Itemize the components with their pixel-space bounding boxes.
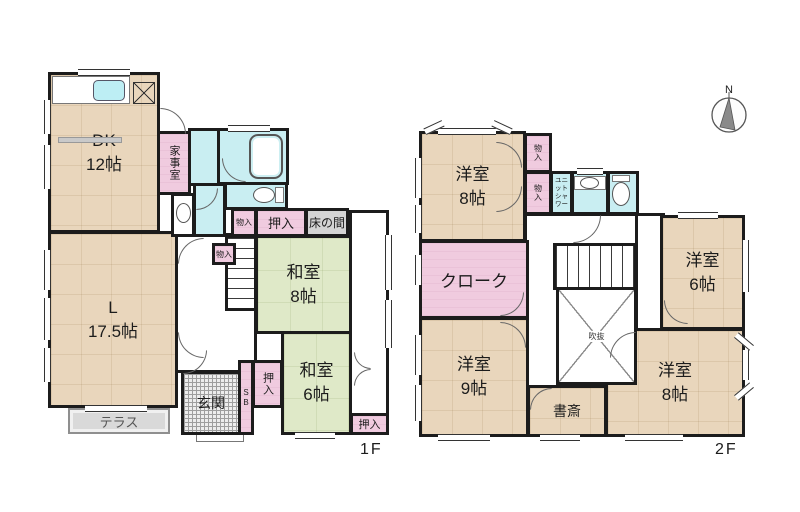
floor-label-2f: 2F (715, 441, 738, 459)
washroom-1f (188, 128, 220, 186)
room-yoshitsu-9-name: 洋室 (457, 353, 491, 377)
unit-shower-line1: ユニット (553, 177, 570, 193)
room-kajishitsu-label: 家事室 (166, 145, 182, 181)
closet-oshiire-top-label: 押入 (268, 213, 294, 232)
closet-oshiire-side-1f: 押入 (252, 360, 283, 408)
room-washitsu-6-name: 和室 (300, 359, 334, 383)
window (44, 250, 51, 290)
kitchen-sink (93, 80, 125, 101)
void-fukinuke-label: 吹抜 (587, 331, 607, 342)
closet-monoire-a-2f: 物入 (524, 133, 552, 173)
window (742, 350, 749, 380)
entrance-step (196, 435, 244, 442)
room-yoshitsu-8-se-size: 8帖 (658, 383, 692, 407)
bathtub-icon (249, 134, 283, 179)
closet-monoire-a-1f: 物入 (231, 208, 257, 237)
room-washitsu-6: 和室 6帖 (281, 331, 352, 435)
room-yoshitsu-8-se-name: 洋室 (658, 359, 692, 383)
unit-shower-line2: シャワー (553, 193, 570, 209)
room-yoshitsu-6-name: 洋室 (686, 249, 720, 273)
window (44, 100, 51, 134)
room-washitsu-6-size: 6帖 (300, 383, 334, 407)
room-washitsu-8-size: 8帖 (287, 285, 321, 309)
terrace-label: テラス (100, 412, 139, 431)
washbasin-icon-2f (580, 177, 599, 189)
toilet-tank-2f (612, 175, 630, 182)
room-yoshitsu-6-label: 洋室 6帖 (686, 249, 720, 297)
window (625, 434, 683, 441)
stove-icon (133, 82, 155, 104)
room-kajishitsu: 家事室 (157, 131, 191, 195)
closet-monoire-b-2f: 物入 (524, 171, 552, 215)
room-yoshitsu-8-nw-name: 洋室 (456, 163, 490, 187)
engawa-corridor-1f (349, 210, 389, 435)
washbasin-icon-1f (176, 203, 191, 223)
window (385, 235, 392, 290)
floor-plan: DK 12帖 L 17.5帖 家事室 物入 押入 床の間 和室 8帖 物入 玄関… (0, 0, 800, 512)
room-yoshitsu-6-size: 6帖 (686, 273, 720, 297)
closet-monoire-b-2f-label: 物入 (533, 184, 544, 202)
closet-monoire-a-label: 物入 (236, 217, 252, 228)
closet-monoire-a-2f-label: 物入 (533, 144, 544, 162)
room-cloak-label: クローク (440, 267, 508, 292)
closet-oshiire-br-1f: 押入 (350, 413, 389, 435)
window (415, 385, 422, 421)
closet-oshiire-br-label: 押入 (359, 416, 381, 432)
window (44, 348, 51, 382)
toilet-icon-1f (253, 187, 275, 203)
room-washitsu-8-name: 和室 (287, 261, 321, 285)
window (415, 205, 422, 233)
room-washitsu-8-label: 和室 8帖 (287, 261, 321, 309)
floor-label-1f: 1F (360, 441, 383, 459)
window (415, 335, 422, 375)
window (228, 125, 270, 132)
tokonoma-label: 床の間 (309, 214, 345, 231)
unit-shower-room: ユニット シャワー (550, 171, 573, 215)
room-washitsu-8: 和室 8帖 (255, 235, 352, 334)
room-yoshitsu-8-nw-size: 8帖 (456, 187, 490, 211)
room-dk-label: DK 12帖 (86, 129, 122, 177)
room-yoshitsu-8-se-label: 洋室 8帖 (658, 359, 692, 407)
window (85, 405, 147, 412)
window (78, 69, 130, 76)
window (438, 434, 490, 441)
shoe-box-sb-label: SB (242, 388, 251, 408)
window (415, 158, 422, 198)
window (540, 434, 580, 441)
room-dk-size: 12帖 (86, 153, 122, 177)
window (742, 240, 749, 292)
dk-counter (58, 137, 122, 143)
window (415, 255, 422, 285)
room-yoshitsu-9-label: 洋室 9帖 (457, 353, 491, 401)
window (44, 298, 51, 340)
window (295, 432, 335, 439)
room-washitsu-6-label: 和室 6帖 (300, 359, 334, 407)
closet-monoire-b-1f: 物入 (212, 243, 236, 265)
staircase-2f (553, 243, 637, 290)
room-yoshitsu-9-size: 9帖 (457, 377, 491, 401)
unit-shower-label: ユニット シャワー (553, 177, 570, 210)
room-living: L 17.5帖 (48, 231, 178, 408)
room-shosai-label: 書斎 (553, 401, 581, 421)
room-yoshitsu-8-nw-label: 洋室 8帖 (456, 163, 490, 211)
window (44, 145, 51, 189)
genkan-entrance: 玄関 (181, 371, 241, 435)
tokonoma-alcove: 床の間 (305, 208, 349, 237)
room-living-label: L 17.5帖 (88, 296, 138, 344)
compass: N (705, 80, 755, 138)
genkan-label: 玄関 (197, 393, 225, 413)
closet-oshiire-side-label: 押入 (260, 372, 276, 396)
room-living-name: L (88, 296, 138, 320)
window (438, 128, 496, 135)
closet-oshiire-top-1f: 押入 (255, 208, 307, 237)
room-living-size: 17.5帖 (88, 320, 138, 344)
window (385, 300, 392, 348)
toilet-tank-1f (275, 187, 284, 203)
door-arc (160, 108, 186, 134)
closet-monoire-b-label: 物入 (216, 249, 232, 260)
window (577, 168, 603, 175)
toilet-icon-2f (612, 182, 630, 206)
window (678, 212, 718, 219)
